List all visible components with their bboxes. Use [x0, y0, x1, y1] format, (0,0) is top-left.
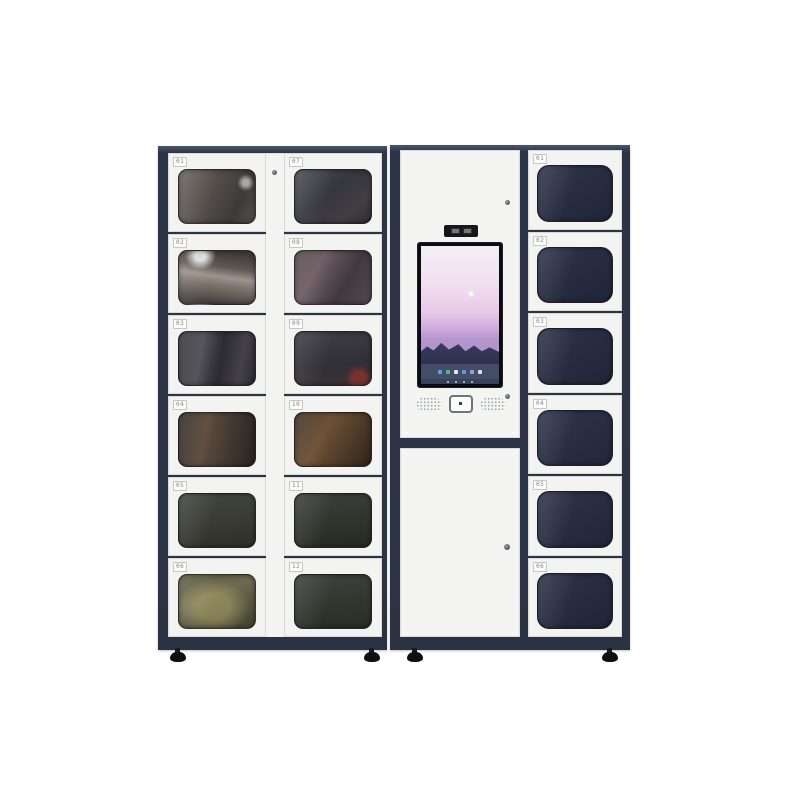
locker-window — [537, 165, 613, 222]
leveling-foot — [170, 648, 186, 663]
kiosk-locker-cabinet: 01 02 03 04 05 06 — [390, 145, 630, 650]
screw — [505, 394, 510, 399]
locker-window — [537, 328, 613, 385]
speaker-grille-right — [480, 397, 506, 412]
locker-number-label: 08 — [289, 238, 303, 248]
locker-door-04: 04 — [168, 396, 266, 475]
screen-navbar — [421, 379, 499, 384]
screw — [272, 170, 277, 175]
locker-number-label: 03 — [173, 319, 187, 329]
locker-door-05: 05 — [168, 477, 266, 556]
locker-door-r03: 03 — [528, 313, 622, 393]
locker-window — [178, 331, 256, 386]
locker-door-06: 06 — [168, 558, 266, 637]
locker-door-08: 08 — [284, 234, 382, 313]
locker-number-label: 06 — [173, 562, 187, 572]
locker-window — [294, 493, 372, 548]
touchscreen-display — [421, 246, 499, 384]
locker-door-10: 10 — [284, 396, 382, 475]
frame-divider — [520, 150, 528, 637]
locker-door-02: 02 — [168, 234, 266, 313]
locker-number-label: 10 — [289, 400, 303, 410]
locker-number-label: 11 — [289, 481, 303, 491]
locker-window — [294, 250, 372, 305]
locker-window — [178, 493, 256, 548]
locker-number-label: 07 — [289, 157, 303, 167]
locker-window — [178, 169, 256, 224]
leveling-foot — [364, 648, 380, 663]
locker-number-label: 05 — [533, 480, 547, 490]
locker-number-label: 09 — [289, 319, 303, 329]
locker-number-label: 01 — [533, 154, 547, 164]
kiosk-upper-panel — [400, 150, 520, 438]
nav-dot-icon — [463, 381, 465, 383]
locker-door-11: 11 — [284, 477, 382, 556]
locker-window — [294, 574, 372, 629]
locker-window — [178, 250, 256, 305]
frame-crossbar — [400, 438, 520, 448]
center-divider-strip — [266, 153, 284, 637]
locker-number-label: 12 — [289, 562, 303, 572]
locker-window — [537, 491, 613, 548]
leveling-foot — [602, 648, 618, 663]
nav-dot-icon — [447, 381, 449, 383]
locker-number-label: 04 — [173, 400, 187, 410]
nav-dot-icon — [455, 381, 457, 383]
locker-door-09: 09 — [284, 315, 382, 394]
locker-number-label: 05 — [173, 481, 187, 491]
camera-module — [444, 225, 478, 237]
screw — [505, 200, 510, 205]
locker-door-01: 01 — [168, 153, 266, 232]
locker-door-r04: 04 — [528, 395, 622, 475]
speaker-grille-left — [416, 397, 442, 412]
locker-window — [178, 574, 256, 629]
locker-door-03: 03 — [168, 315, 266, 394]
nav-dot-icon — [471, 381, 473, 383]
locker-number-label: 01 — [173, 157, 187, 167]
locker-column-a: 01 02 03 04 05 06 — [168, 153, 266, 637]
app-icon — [478, 370, 482, 374]
locker-door-r05: 05 — [528, 476, 622, 556]
locker-number-label: 02 — [173, 238, 187, 248]
app-icon — [454, 370, 458, 374]
locker-number-label: 02 — [533, 236, 547, 246]
locker-number-label: 04 — [533, 399, 547, 409]
locker-column-right: 01 02 03 04 05 06 — [528, 150, 622, 637]
kiosk-tower — [400, 150, 520, 637]
locker-window — [537, 247, 613, 304]
left-locker-cabinet: 01 02 03 04 05 06 — [158, 146, 387, 650]
leveling-foot — [407, 648, 423, 663]
locker-number-label: 03 — [533, 317, 547, 327]
locker-window — [537, 410, 613, 467]
locker-column-b: 07 08 09 10 11 12 — [284, 153, 382, 637]
locker-door-r06: 06 — [528, 558, 622, 638]
locker-window — [294, 331, 372, 386]
locker-door-r01: 01 — [528, 150, 622, 230]
app-icon — [462, 370, 466, 374]
locker-window — [537, 573, 613, 630]
camera-lens-icon — [451, 228, 460, 234]
locker-door-r02: 02 — [528, 232, 622, 312]
locker-window — [178, 412, 256, 467]
touchscreen-bezel — [418, 243, 502, 387]
app-icon — [446, 370, 450, 374]
service-door — [400, 448, 520, 637]
locker-door-07: 07 — [284, 153, 382, 232]
screen-taskbar — [421, 364, 499, 379]
locker-number-label: 06 — [533, 562, 547, 572]
scanner-button — [449, 395, 473, 413]
locker-door-12: 12 — [284, 558, 382, 637]
locker-window — [294, 412, 372, 467]
lock-icon — [504, 544, 510, 550]
app-icon — [470, 370, 474, 374]
camera-sensor-icon — [463, 228, 472, 234]
sun-icon — [469, 292, 473, 296]
locker-window — [294, 169, 372, 224]
app-icon — [438, 370, 442, 374]
product-photo-smart-locker: 01 02 03 04 05 06 — [0, 0, 800, 800]
